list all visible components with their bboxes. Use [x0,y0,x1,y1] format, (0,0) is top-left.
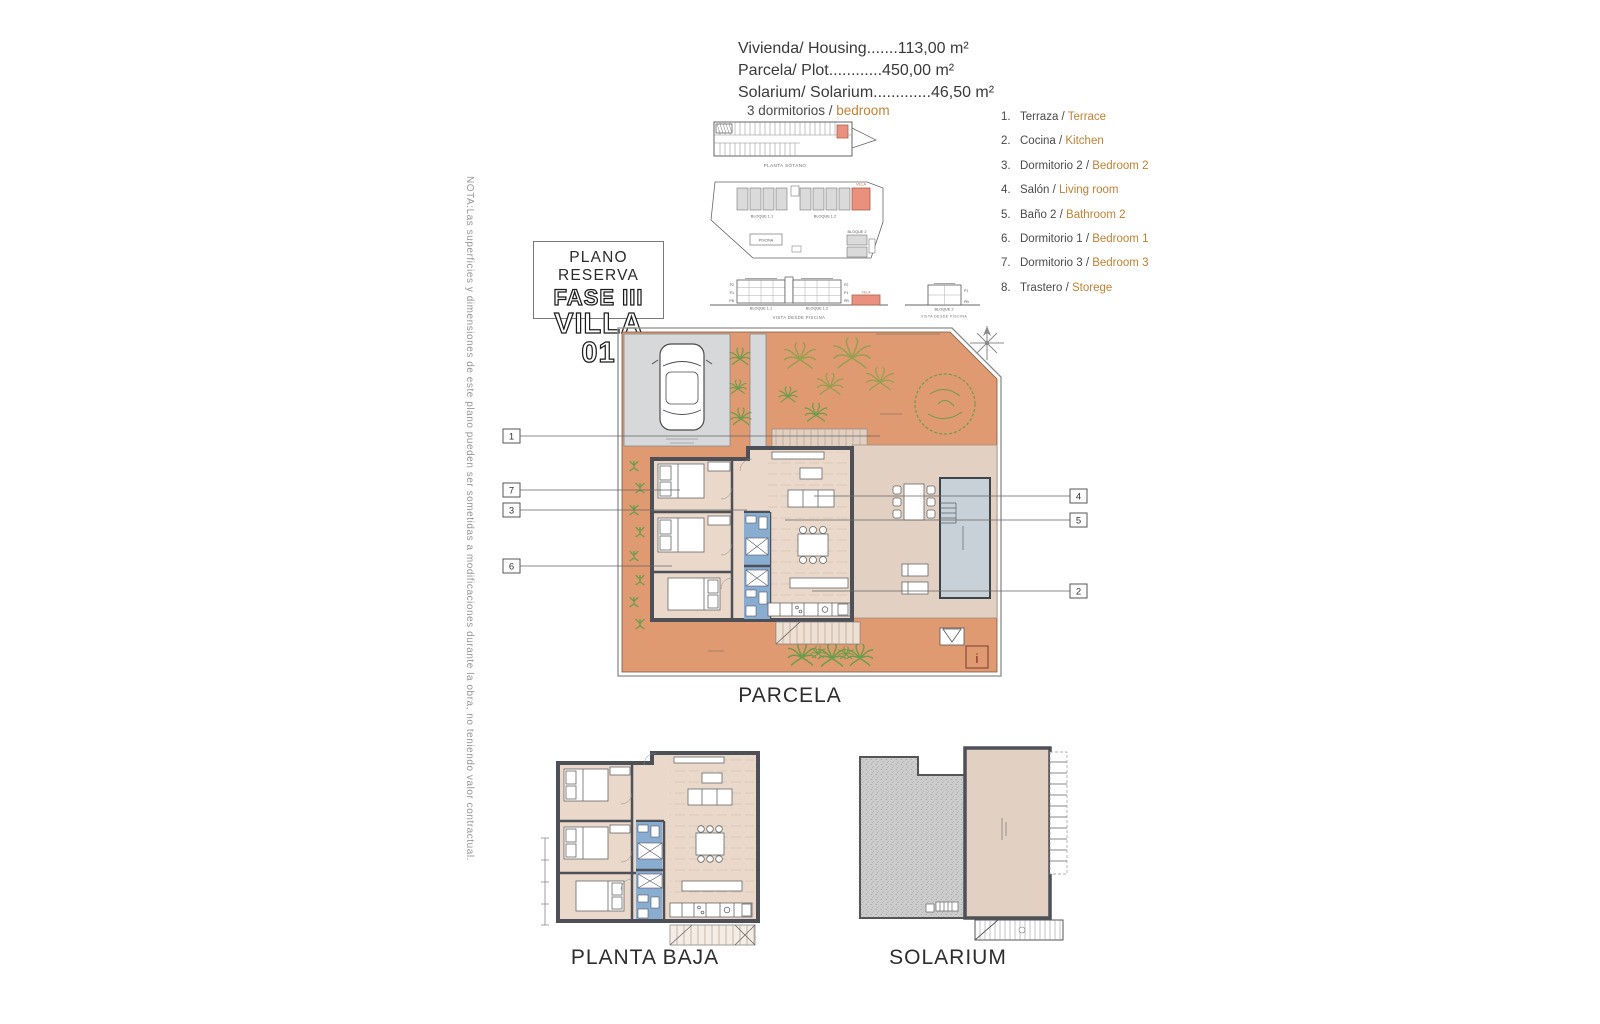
site-strip-plan: PLANTA SÓTANO [700,116,880,172]
highlighted-villa [852,188,870,210]
ground-floor-plan [520,733,770,961]
legend-item: 6.Dormitorio 1 / Bedroom 1 [1001,233,1148,245]
svg-text:i: i [976,651,979,666]
vista-caption: VISTA DESDE PISCINA [773,315,826,320]
legend-item: 4.Salón / Living room [1001,184,1148,196]
svg-text:P1: P1 [730,291,734,295]
site-overview-plan: VILLA BLOQUE 1.1 BLOQUE 1.2 BLOQUE 2 PIS… [695,172,965,266]
solarium-area-line: Solarium/ Solarium.............46,50 m² [738,82,994,104]
legend-item: 2.Cocina / Kitchen [1001,135,1148,147]
legend-item: 5.Baño 2 / Bathroom 2 [1001,209,1148,221]
kitchen [670,903,752,917]
callout-4: 4 [1076,492,1081,503]
room-legend: 1.Terraza / Terrace 2.Cocina / Kitchen 3… [1001,111,1148,306]
info-marker: i [966,646,988,668]
bed-3 [668,578,720,610]
housing-area-line: Vivienda/ Housing.......113,00 m² [738,38,994,60]
roof-area [860,757,965,918]
svg-text:BLOQUE 1.1: BLOQUE 1.1 [750,307,772,311]
legend-item: 7.Dormitorio 3 / Bedroom 3 [1001,257,1148,269]
title-box: PLANO RESERVA FASE III VILLA 01 [533,241,664,319]
gate-marker [940,628,964,645]
svg-text:P2: P2 [844,283,848,287]
callout-6: 6 [509,562,514,573]
elevation-views: P2 P1 PB P2 P1 PB VILLA BLOQUE 1.1 BLOQU… [695,262,985,324]
legend-item: 1.Terraza / Terrace [1001,111,1148,123]
svg-text:PB: PB [729,299,734,303]
svg-text:BLOQUE 1.2: BLOQUE 1.2 [806,307,828,311]
stairs [975,920,1063,940]
svg-text:P1: P1 [964,289,968,293]
exterior-stairs [776,622,860,644]
disclaimer-note: NOTA:Las superficies y dimensiones de es… [464,176,475,876]
planta-baja-label: PLANTA BAJA [545,946,745,970]
block-1-1-units [737,188,787,210]
block-1-2-units [800,188,850,210]
kitchen [768,603,850,616]
svg-text:P2: P2 [730,283,734,287]
svg-text:VILLA: VILLA [862,291,872,295]
svg-text:VISTA DESDE PISCINA: VISTA DESDE PISCINA [921,315,967,319]
villa-elevation [852,295,880,305]
legend-item: 3.Dormitorio 2 / Bedroom 2 [1001,160,1148,172]
piscina-label: PISCINA [759,239,774,243]
ramp-wedge [852,128,876,148]
bloque2-elevation: P1 PB BLOQUE 2 VISTA DESDE PISCINA [905,284,980,319]
plan-type-label: PLANO RESERVA [534,249,663,285]
callout-5: 5 [1076,516,1081,527]
bloque11-elevation [737,279,785,304]
parcela-label: PARCELA [690,684,890,708]
callout-1: 1 [509,432,514,443]
callout-7: 7 [509,486,514,497]
area-summary: Vivienda/ Housing.......113,00 m² Parcel… [738,38,994,104]
outdoor-dining [893,484,935,520]
walkway [750,334,766,448]
villa-tag: VILLA [856,183,866,187]
stairs [670,925,755,945]
pergola [1050,752,1067,874]
svg-text:BLOQUE 2: BLOQUE 2 [935,308,954,312]
bloque2-label: BLOQUE 2 [848,230,867,234]
highlighted-unit [837,125,848,138]
callout-3: 3 [509,506,514,517]
strip-caption: PLANTA SÓTANO [764,162,807,168]
callout-2: 2 [1076,587,1081,598]
main-parcel-plan: i 1 7 3 6 4 5 2 [500,326,1100,680]
solarium-plan [830,728,1090,958]
svg-text:PB: PB [844,299,849,303]
bloque12-label: BLOQUE 1.2 [814,215,836,219]
bloque12-elevation [793,279,841,304]
phase-label: FASE III [534,286,663,310]
car [652,344,712,430]
floor-labels-left: P2 P1 PB [729,283,734,303]
svg-text:PB: PB [964,300,969,304]
dimension-ruler [541,838,549,925]
bloque11-label: BLOQUE 1.1 [751,215,773,219]
svg-text:P1: P1 [844,291,848,295]
plot-area-line: Parcela/ Plot............450,00 m² [738,60,994,82]
solarium-deck [965,748,1050,918]
floor-labels-right: P2 P1 PB [844,283,849,303]
compass-icon [970,326,1004,360]
block-2-units [847,235,875,257]
bed-3 [576,881,624,911]
solarium-label: SOLARIUM [848,946,1048,970]
legend-item: 8.Trastero / Storege [1001,282,1148,294]
